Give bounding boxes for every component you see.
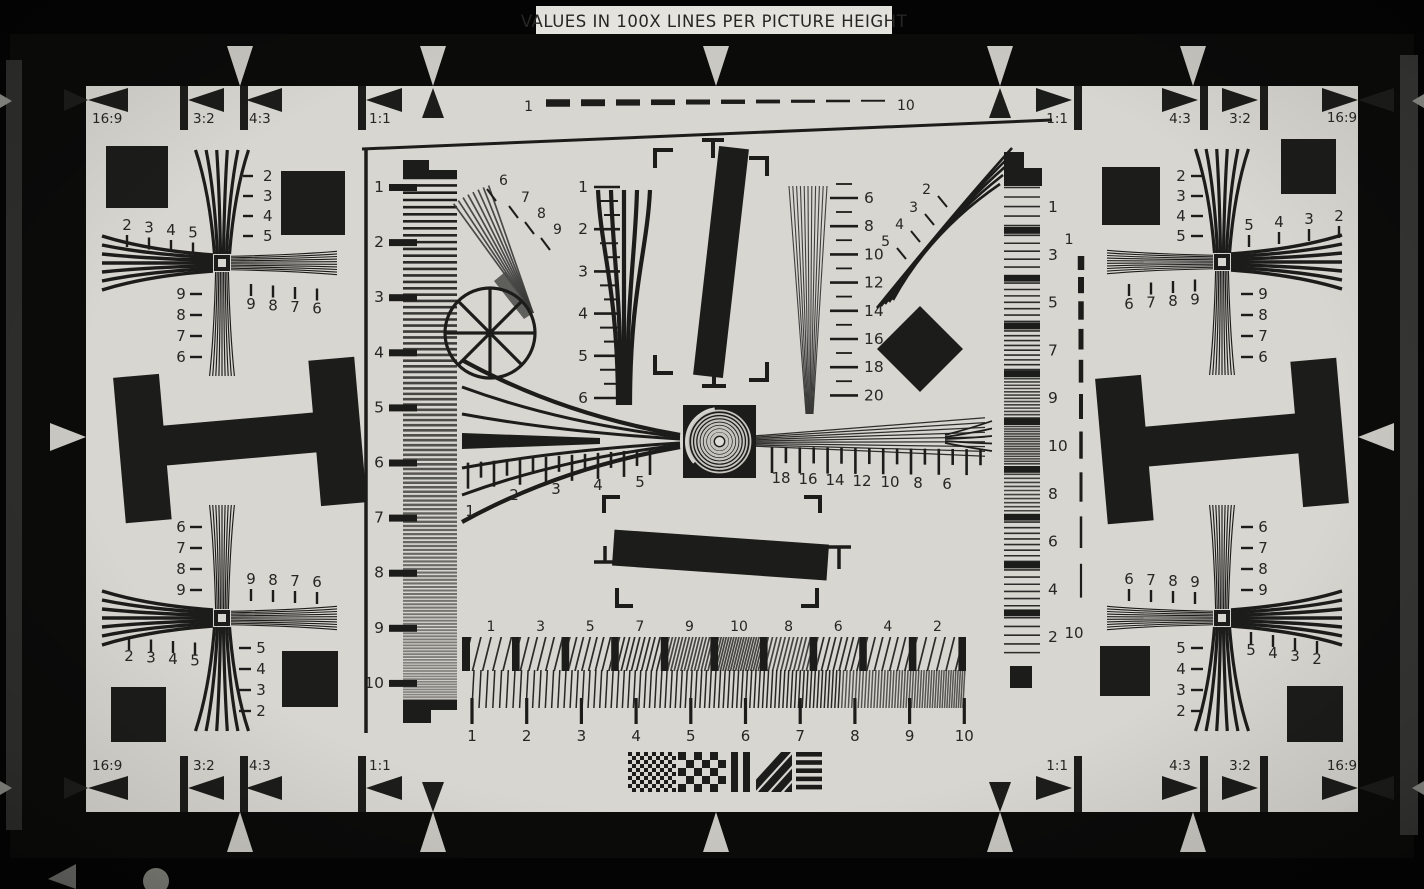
vignette-overlay: [0, 0, 1424, 889]
iso12233-test-chart-photo: VALUES IN 100X LINES PER PICTURE HEIGHT …: [0, 0, 1424, 889]
